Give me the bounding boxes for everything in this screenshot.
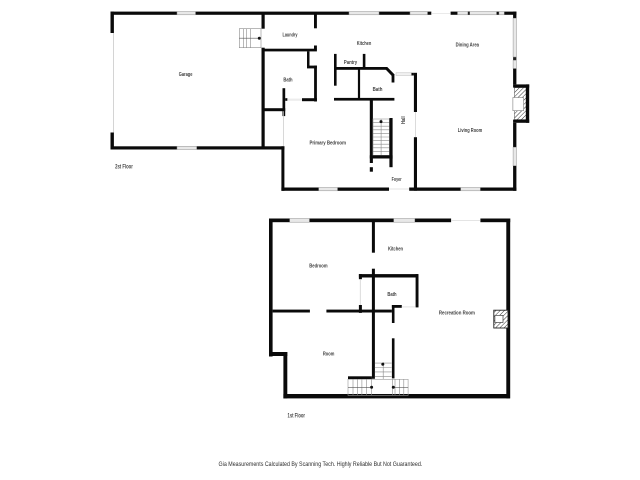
svg-text:Room: Room — [323, 351, 335, 357]
svg-text:Bath: Bath — [283, 78, 293, 84]
svg-text:Kitchen: Kitchen — [388, 247, 403, 253]
svg-text:Hall: Hall — [401, 116, 407, 124]
svg-text:Bath: Bath — [387, 292, 397, 298]
svg-text:Foyer: Foyer — [392, 177, 402, 183]
svg-text:Bedroom: Bedroom — [309, 264, 327, 270]
svg-text:Garage: Garage — [179, 72, 193, 78]
svg-text:Bath: Bath — [373, 87, 383, 93]
svg-text:1st Floor: 1st Floor — [288, 414, 306, 420]
svg-text:Living Room: Living Room — [458, 128, 482, 134]
svg-text:2st Floor: 2st Floor — [115, 165, 133, 171]
svg-text:Kitchen: Kitchen — [357, 41, 372, 47]
svg-text:Primary Bedroom: Primary Bedroom — [309, 141, 346, 147]
svg-text:Gia Measurements Calculated By: Gia Measurements Calculated By Scanning … — [219, 461, 423, 468]
svg-text:Recreation Room: Recreation Room — [439, 311, 475, 317]
svg-text:Dining Area: Dining Area — [456, 43, 480, 49]
svg-text:Laundry: Laundry — [283, 33, 299, 39]
svg-text:Pantry: Pantry — [344, 60, 358, 66]
